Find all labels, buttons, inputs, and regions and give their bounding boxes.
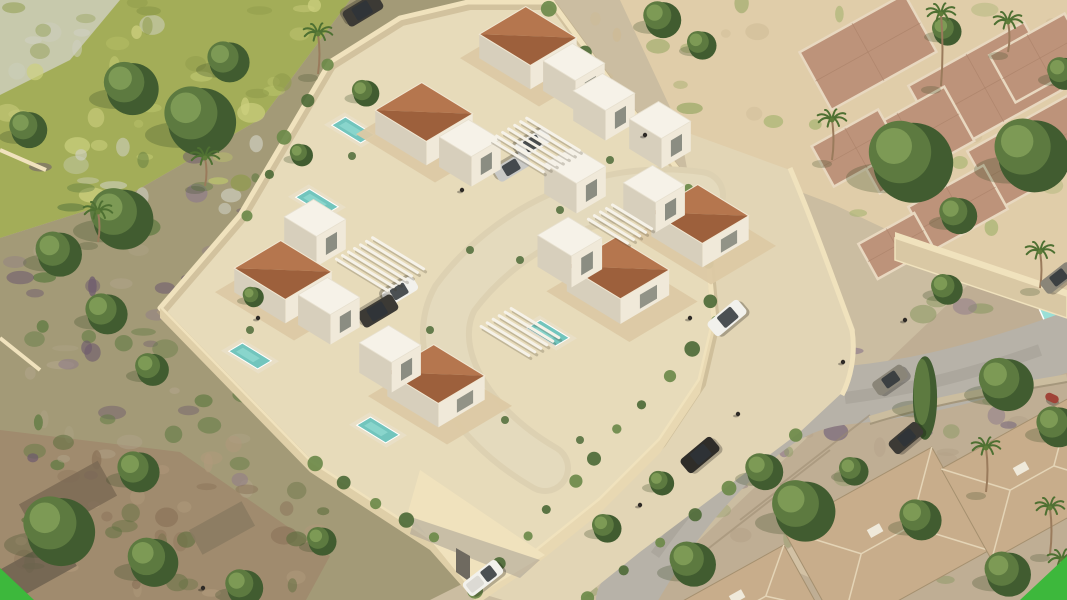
garden-shrub [426, 326, 434, 334]
scrub-blob [849, 209, 867, 217]
canopy-light [943, 201, 959, 217]
canopy-light [749, 457, 765, 473]
garden-shrub [501, 416, 509, 424]
canopy-light [229, 573, 245, 589]
scrub-blob [208, 177, 228, 184]
scrub-blob [116, 138, 130, 157]
vine-clump [655, 538, 665, 548]
scrub-blob [53, 435, 74, 450]
scrub-blob [30, 43, 50, 59]
scrub-blob [77, 177, 99, 184]
scrub-blob [677, 103, 703, 114]
canopy-light [310, 530, 323, 543]
scrub-blob [288, 578, 297, 592]
scrub-blob [673, 81, 688, 89]
scrub-blob [764, 115, 784, 128]
vine-clump [277, 130, 292, 145]
vine-clump [265, 170, 274, 179]
scrub-blob [273, 73, 292, 91]
canopy-light [171, 93, 202, 124]
canopy-light [647, 5, 663, 21]
scrub-blob [37, 320, 49, 333]
canopy-light [121, 455, 139, 473]
canopy-light [984, 363, 1007, 386]
scrub-blob [943, 424, 960, 438]
scrub-blob [835, 6, 844, 23]
scrub-blob [245, 89, 269, 98]
figure-body [460, 188, 464, 192]
vine-clump [399, 512, 414, 527]
palm-crown [1006, 20, 1011, 25]
scrub-blob [72, 40, 82, 57]
scrub-blob [134, 120, 143, 128]
scrub-blob [195, 394, 213, 407]
canopy-light [211, 45, 229, 63]
scrub-blob [247, 6, 272, 15]
vine-clump [524, 531, 533, 540]
vine-clump [689, 508, 702, 521]
scrub-blob [2, 2, 25, 13]
palm-shadow [921, 86, 941, 94]
vine-clump [542, 505, 551, 514]
scrub-blob [117, 435, 143, 450]
scrub-blob [131, 25, 142, 39]
scrub-blob [745, 23, 769, 40]
scrub-blob [101, 512, 112, 522]
palm-shadow [812, 160, 832, 168]
scrub-blob [1000, 421, 1016, 429]
scrub-blob [250, 135, 263, 152]
scrub-blob [100, 414, 116, 424]
scrub-blob [26, 289, 44, 298]
palm-shadow [1020, 288, 1040, 296]
canopy-light [842, 460, 855, 473]
scrub-blob [155, 508, 178, 528]
scrub-blob [590, 12, 600, 25]
canopy-light [778, 486, 805, 513]
scrub-blob [613, 28, 622, 42]
vine-clump [704, 295, 718, 309]
scrub-blob [178, 406, 199, 416]
canopy-light [1040, 410, 1058, 428]
vine-clump [308, 456, 323, 471]
vine-clump [242, 210, 253, 221]
scrub-blob [27, 453, 38, 462]
scrub-blob [27, 64, 44, 81]
scrub-blob [225, 436, 241, 453]
vine-clump [637, 400, 646, 409]
development-aerial-render [0, 0, 1067, 600]
scrub-blob [35, 24, 51, 37]
palm-shadow [185, 186, 205, 194]
canopy-light [903, 503, 921, 521]
scrub-blob [201, 451, 223, 464]
scrub-blob [75, 149, 87, 160]
scrub-blob [971, 3, 998, 17]
canopy-light [1001, 125, 1033, 157]
scrub-blob [287, 482, 306, 499]
scrub-blob [177, 501, 191, 512]
scrub-blob [646, 39, 670, 54]
scrub-blob [131, 328, 156, 336]
canopy-light [989, 556, 1009, 576]
vine-clump [587, 452, 601, 466]
scrub-blob [3, 256, 27, 268]
canopy-light [876, 128, 912, 164]
scrub-blob [57, 455, 70, 463]
canopy-light [89, 297, 107, 315]
canopy-light [132, 542, 154, 564]
canopy-light [934, 277, 948, 291]
scrub-blob [874, 437, 886, 457]
canopy-light [138, 356, 152, 370]
scrub-blob [293, 5, 315, 12]
canopy-light [595, 517, 608, 530]
scrub-blob [952, 156, 968, 169]
figure-body [643, 133, 647, 137]
canopy-light [292, 146, 302, 156]
vine-clump [541, 1, 557, 17]
figure-body [688, 316, 692, 320]
scrub-blob [74, 29, 90, 37]
canopy-light [109, 67, 132, 90]
garden-shrub [466, 246, 474, 254]
vine-clump [429, 532, 439, 542]
canopy-light [1050, 60, 1064, 74]
palm-crown [96, 210, 101, 215]
scrub-blob [67, 183, 95, 192]
palm-crown [1048, 506, 1053, 511]
figure-body [201, 586, 205, 590]
scrub-blob [81, 341, 92, 355]
scrub-blob [910, 305, 937, 324]
figure-body [256, 316, 260, 320]
canopy-light [651, 473, 662, 484]
vine-clump [619, 565, 629, 575]
canopy-light [245, 289, 254, 298]
canopy-light [40, 236, 60, 256]
scrub-blob [280, 501, 294, 516]
scrub-blob [721, 29, 731, 38]
canopy-light [354, 82, 366, 94]
garden-shrub [606, 156, 614, 164]
conifer-canopy-light [914, 359, 931, 425]
scrub-blob [165, 426, 183, 443]
scrub-blob [746, 107, 762, 121]
vine-clump [612, 424, 621, 433]
scrub-blob [231, 175, 252, 192]
scrub-blob [122, 504, 140, 523]
palm-crown [830, 118, 835, 123]
vine-clump [684, 341, 700, 357]
scrub-blob [25, 367, 36, 380]
scrub-blob [230, 457, 250, 470]
palm-crown [984, 446, 989, 451]
garden-shrub [516, 256, 524, 264]
palm-shadow [298, 74, 318, 82]
scrub-blob [58, 359, 78, 370]
palm-shadow [78, 242, 98, 250]
figure-body [841, 360, 845, 364]
scrub-blob [235, 485, 258, 495]
scrub-blob [237, 103, 265, 123]
scrub-blob [76, 14, 96, 23]
scrub-blob [232, 473, 248, 487]
vine-clump [789, 428, 802, 441]
garden-shrub [246, 326, 254, 334]
garden-shrub [576, 436, 584, 444]
scrub-blob [106, 37, 129, 51]
scrub-blob [7, 271, 34, 284]
canopy-light [690, 34, 703, 47]
scrub-blob [91, 140, 108, 151]
scrub-blob [34, 414, 43, 430]
scrub-blob [137, 152, 148, 168]
scrub-blob [197, 483, 217, 490]
scrub-blob [136, 6, 161, 15]
vine-clump [301, 94, 314, 107]
vine-clump [664, 370, 676, 382]
scrub-blob [198, 417, 222, 434]
scrub-blob [52, 345, 78, 351]
vine-clump [337, 476, 351, 490]
scrub-blob [57, 203, 85, 211]
figure-body [903, 318, 907, 322]
scrub-blob [8, 63, 25, 80]
canopy-light [674, 546, 694, 566]
scrub-blob [142, 17, 152, 35]
vine-clump [322, 59, 334, 71]
scrub-blob [24, 331, 45, 347]
scrub-blob [219, 203, 232, 214]
palm-shadow [988, 52, 1008, 60]
figure-body [638, 503, 642, 507]
scrub-blob [88, 276, 97, 296]
garden-shrub [348, 152, 356, 160]
aerial-render-canvas [0, 0, 1067, 600]
vine-clump [722, 481, 737, 496]
palm-crown [316, 32, 321, 37]
canopy-light [13, 115, 29, 131]
scrub-blob [317, 507, 329, 515]
palm-crown [203, 156, 208, 161]
canopy-light [30, 503, 61, 534]
scrub-blob [110, 278, 133, 289]
vine-clump [569, 475, 582, 488]
figure-body [736, 412, 740, 416]
garden-shrub [556, 206, 564, 214]
scrub-blob [112, 520, 138, 532]
scrub-blob [88, 108, 105, 128]
palm-crown [1038, 250, 1043, 255]
palm-shadow [966, 492, 986, 500]
scrub-blob [169, 387, 179, 394]
scrub-blob [115, 335, 133, 351]
vine-clump [370, 498, 381, 509]
palm-crown [939, 12, 944, 17]
